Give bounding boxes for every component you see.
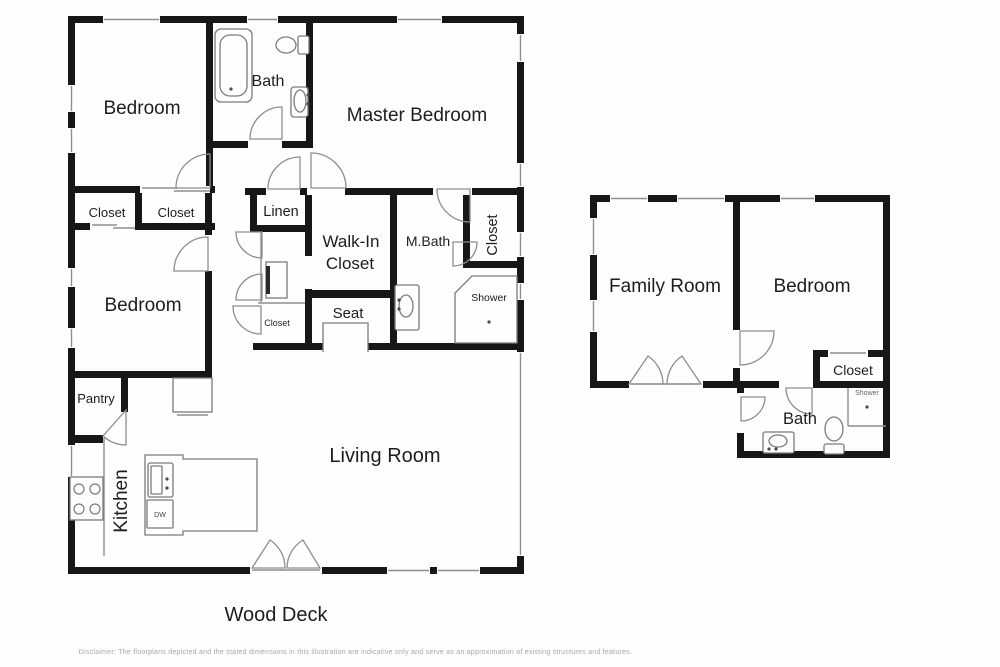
drain-dot [229,87,232,90]
room-label-seat: Seat [333,305,365,322]
door-hall-closet [233,306,261,334]
disclaimer-text: Disclaimer: The floorplans depicted and … [28,649,683,656]
room-label-bedroom-1: Bedroom [103,98,180,119]
drain-dot [165,477,168,480]
wall-opening [733,330,740,368]
wall [463,195,470,268]
wall-opening [779,381,813,388]
room-label-linen: Linen [263,204,298,220]
wall [305,290,397,298]
water-heater-bar [266,266,270,294]
toilet-tank-main [298,36,309,54]
door-bath-main [250,107,282,139]
mbath-sink-oval [399,295,413,317]
wall-opening [176,186,209,193]
door-family-right [667,356,701,384]
room-label-kitchen: Kitchen [111,469,132,532]
drain-dot [165,486,168,489]
door-utility-top [236,232,262,258]
wall [255,225,307,232]
room-label-closet-a: Closet [89,205,126,220]
door-bedroom-2 [174,237,208,271]
drain-dot [306,93,309,96]
room-label-closet-right: Closet [833,362,873,378]
door-master [311,153,346,188]
room-label-dishwasher: DW [154,512,166,519]
drain-dot [487,320,490,323]
door-bedroom-1 [176,154,210,188]
wall [205,186,212,378]
room-label-bath-main: Bath [252,73,285,90]
door-pantry [103,410,126,445]
room-label-closet-hall: Closet [264,318,290,328]
wall [253,343,323,350]
wall [463,261,524,268]
drain-dot [767,447,770,450]
appliance-x-box [173,378,212,412]
drain-dot [774,447,777,450]
room-label-wood-deck: Wood Deck [224,604,328,626]
room-label-bath-right: Bath [783,410,817,428]
drain-dot [306,102,309,105]
drain-dot [397,307,400,310]
wall-opening [90,223,135,230]
toilet-bowl-main [276,37,296,53]
wall-opening [307,188,345,195]
room-label-bedroom-2: Bedroom [104,295,181,316]
room-label-master-bedroom: Master Bedroom [347,105,487,126]
room-label-shower-main: Shower [471,292,507,304]
wall [883,195,890,458]
room-label-m-bath: M.Bath [406,233,450,249]
room-label-walkin-line1: Walk-In [323,232,380,251]
wall-opening [248,141,282,148]
door-bedroom-3 [740,331,774,365]
door-deck-right [287,540,320,568]
floorplan-svg: BedroomBathMaster BedroomClosetClosetLin… [0,0,1000,667]
room-label-shower-right: Shower [855,390,879,397]
room-label-bedroom-3: Bedroom [773,276,850,297]
shower-stall-main [455,276,517,343]
room-label-closet-b: Closet [158,205,195,220]
wall [68,371,212,378]
seat-nook [323,323,368,352]
right-toilet-tank [824,444,844,454]
drain-dot [865,405,868,408]
door-utility-bottom [236,274,262,300]
sink-oval-main-bath [294,90,306,112]
room-label-family-room: Family Room [609,276,721,297]
door-bath-right [741,397,765,421]
door-linen [268,157,300,189]
room-label-pantry: Pantry [77,391,115,406]
wall [121,378,128,412]
island-sink-basin [151,466,162,494]
right-bath-sink-oval [769,435,787,447]
door-deck-left [252,540,285,568]
bathtub-inner [220,35,247,96]
wall-opening [305,256,312,289]
floorplan-image: BedroomBathMaster BedroomClosetClosetLin… [0,0,1000,667]
room-label-closet-mbath: Closet [485,214,501,255]
room-label-walkin-line2: Closet [326,254,374,273]
right-toilet-bowl [825,417,843,441]
room-label-living-room: Living Room [329,445,440,467]
drain-dot [397,298,400,301]
wall [737,451,890,458]
door-family-left [629,356,663,384]
wall [390,343,524,350]
wall [68,435,103,443]
